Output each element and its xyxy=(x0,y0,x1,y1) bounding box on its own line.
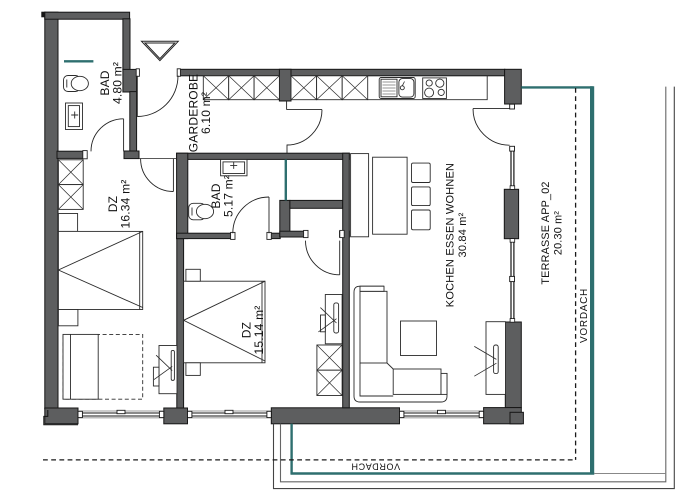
svg-text:VORDACH: VORDACH xyxy=(351,461,400,471)
svg-text:VORDACH: VORDACH xyxy=(579,288,590,343)
